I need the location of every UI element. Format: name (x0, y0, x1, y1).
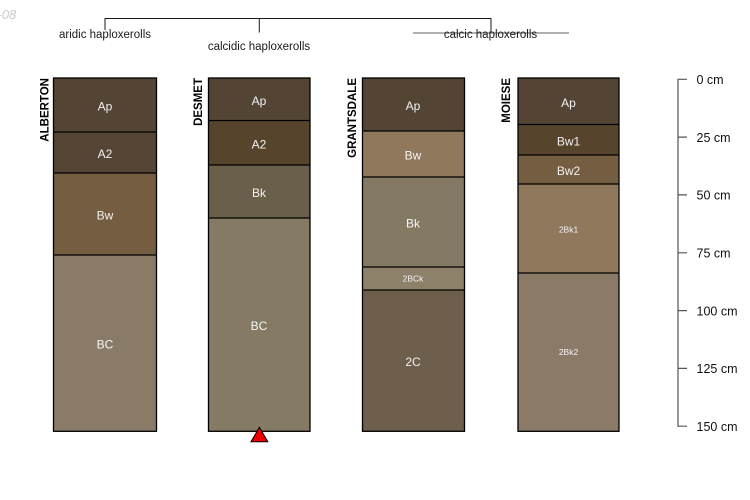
svg-text:150 cm: 150 cm (697, 420, 738, 434)
svg-text:BC: BC (97, 338, 114, 352)
svg-text:Ap: Ap (98, 100, 113, 114)
svg-text:aridic haploxerolls: aridic haploxerolls (59, 29, 151, 41)
svg-text:25 cm: 25 cm (697, 131, 731, 145)
svg-text:Ap: Ap (406, 99, 421, 113)
svg-text:calcidic haploxerolls: calcidic haploxerolls (208, 41, 311, 53)
svg-text:Bw1: Bw1 (557, 134, 581, 148)
svg-text:Bk: Bk (406, 217, 421, 231)
svg-text:Bw2: Bw2 (557, 164, 581, 178)
svg-text:GRANTSDALE: GRANTSDALE (347, 78, 359, 158)
svg-text:Ap: Ap (252, 94, 267, 108)
svg-text:75 cm: 75 cm (697, 247, 731, 261)
svg-text:125 cm: 125 cm (697, 362, 738, 376)
svg-text:Bw: Bw (405, 149, 422, 163)
svg-text:A2: A2 (98, 147, 113, 161)
svg-text:2BCk: 2BCk (403, 274, 425, 284)
svg-text:ALBERTON: ALBERTON (40, 78, 52, 142)
svg-text:50 cm: 50 cm (697, 189, 731, 203)
svg-text:BC: BC (251, 319, 268, 333)
svg-text:MOIESE: MOIESE (501, 78, 513, 123)
svg-text:2C: 2C (405, 355, 421, 369)
svg-text:A2: A2 (252, 137, 267, 151)
svg-text:Bw: Bw (97, 209, 114, 223)
svg-text:2Bk1: 2Bk1 (559, 225, 579, 235)
svg-text:Bk: Bk (252, 186, 267, 200)
svg-text:0 cm: 0 cm (697, 73, 724, 87)
svg-text:-08: -08 (0, 7, 17, 22)
svg-text:calcic haploxerolls: calcic haploxerolls (444, 29, 538, 41)
svg-text:DESMET: DESMET (193, 78, 205, 126)
svg-text:100 cm: 100 cm (697, 304, 738, 318)
svg-text:2Bk2: 2Bk2 (559, 347, 579, 357)
svg-text:Ap: Ap (561, 96, 576, 110)
